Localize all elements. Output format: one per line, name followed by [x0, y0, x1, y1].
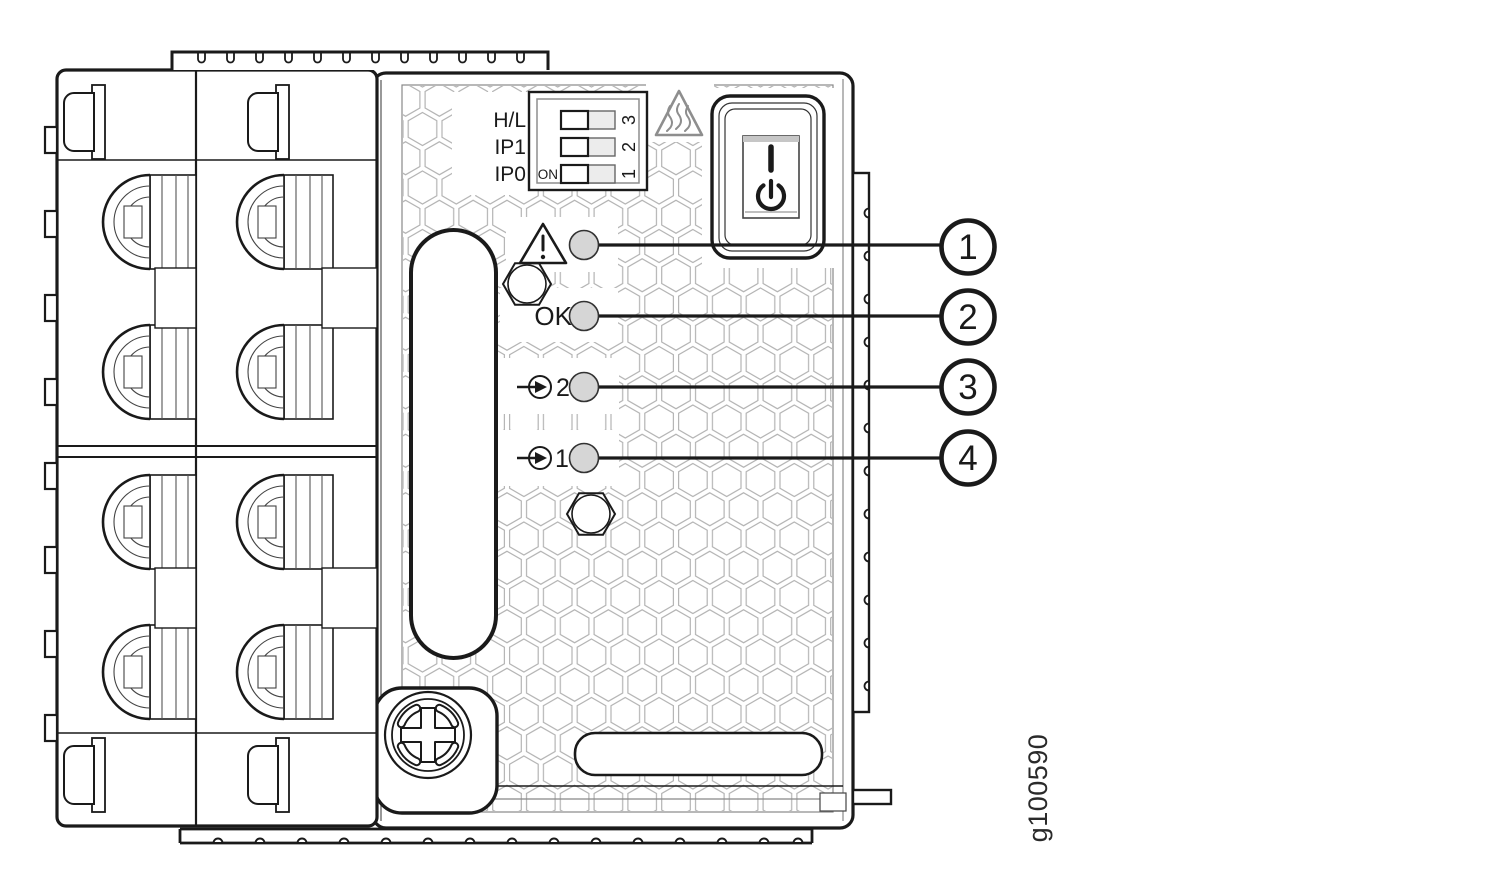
warning-led — [570, 231, 599, 260]
ok-led — [570, 302, 599, 331]
input-1-led — [570, 444, 599, 473]
label-slot — [575, 733, 822, 775]
dip-switch-rockers — [561, 111, 615, 183]
module-handle — [411, 230, 496, 658]
dip-number-3: 3 — [619, 115, 639, 125]
dip-rocker-1-body — [588, 165, 615, 183]
bottom-rail-step — [820, 793, 846, 811]
top-notched-strip — [172, 52, 548, 70]
bottom-notched-strip — [180, 829, 812, 843]
figure-canvas: H/L IP1 IP0 ON 3 2 1 — [0, 0, 1501, 879]
power-rocker-top-band — [743, 136, 799, 142]
dip-rocker-3-cap — [561, 111, 588, 129]
faceplate: H/L IP1 IP0 ON 3 2 1 — [373, 73, 891, 828]
ok-led-label: OK — [534, 301, 572, 331]
dip-rocker-2-body — [588, 138, 615, 156]
input-2-led — [570, 373, 599, 402]
input-1-label: 1 — [555, 445, 569, 473]
psu-module-diagram: H/L IP1 IP0 ON 3 2 1 — [0, 0, 1501, 879]
dip-label-ip1: IP1 — [494, 136, 526, 159]
dip-number-2: 2 — [619, 142, 639, 152]
dip-rocker-3-body — [588, 111, 615, 129]
left-edge-tabs — [45, 127, 57, 741]
input-2-label: 2 — [556, 374, 570, 402]
ejector-latch-tab — [853, 790, 891, 804]
dip-label-ip0: IP0 — [494, 163, 526, 186]
dip-rocker-1-cap — [561, 165, 588, 183]
dip-rocker-2-cap — [561, 138, 588, 156]
captive-screw — [374, 688, 497, 813]
callout-number-4: 4 — [958, 439, 977, 478]
callout-number-2: 2 — [958, 298, 977, 337]
dip-number-1: 1 — [619, 169, 639, 179]
figure-id: g100590 — [1023, 734, 1053, 843]
dip-on-label: ON — [538, 167, 558, 182]
callout-number-1: 1 — [958, 228, 977, 267]
callouts: 1 2 3 4 — [942, 221, 995, 485]
dip-label-hl: H/L — [493, 109, 526, 132]
power-switch — [712, 96, 824, 258]
callout-number-3: 3 — [958, 368, 977, 407]
